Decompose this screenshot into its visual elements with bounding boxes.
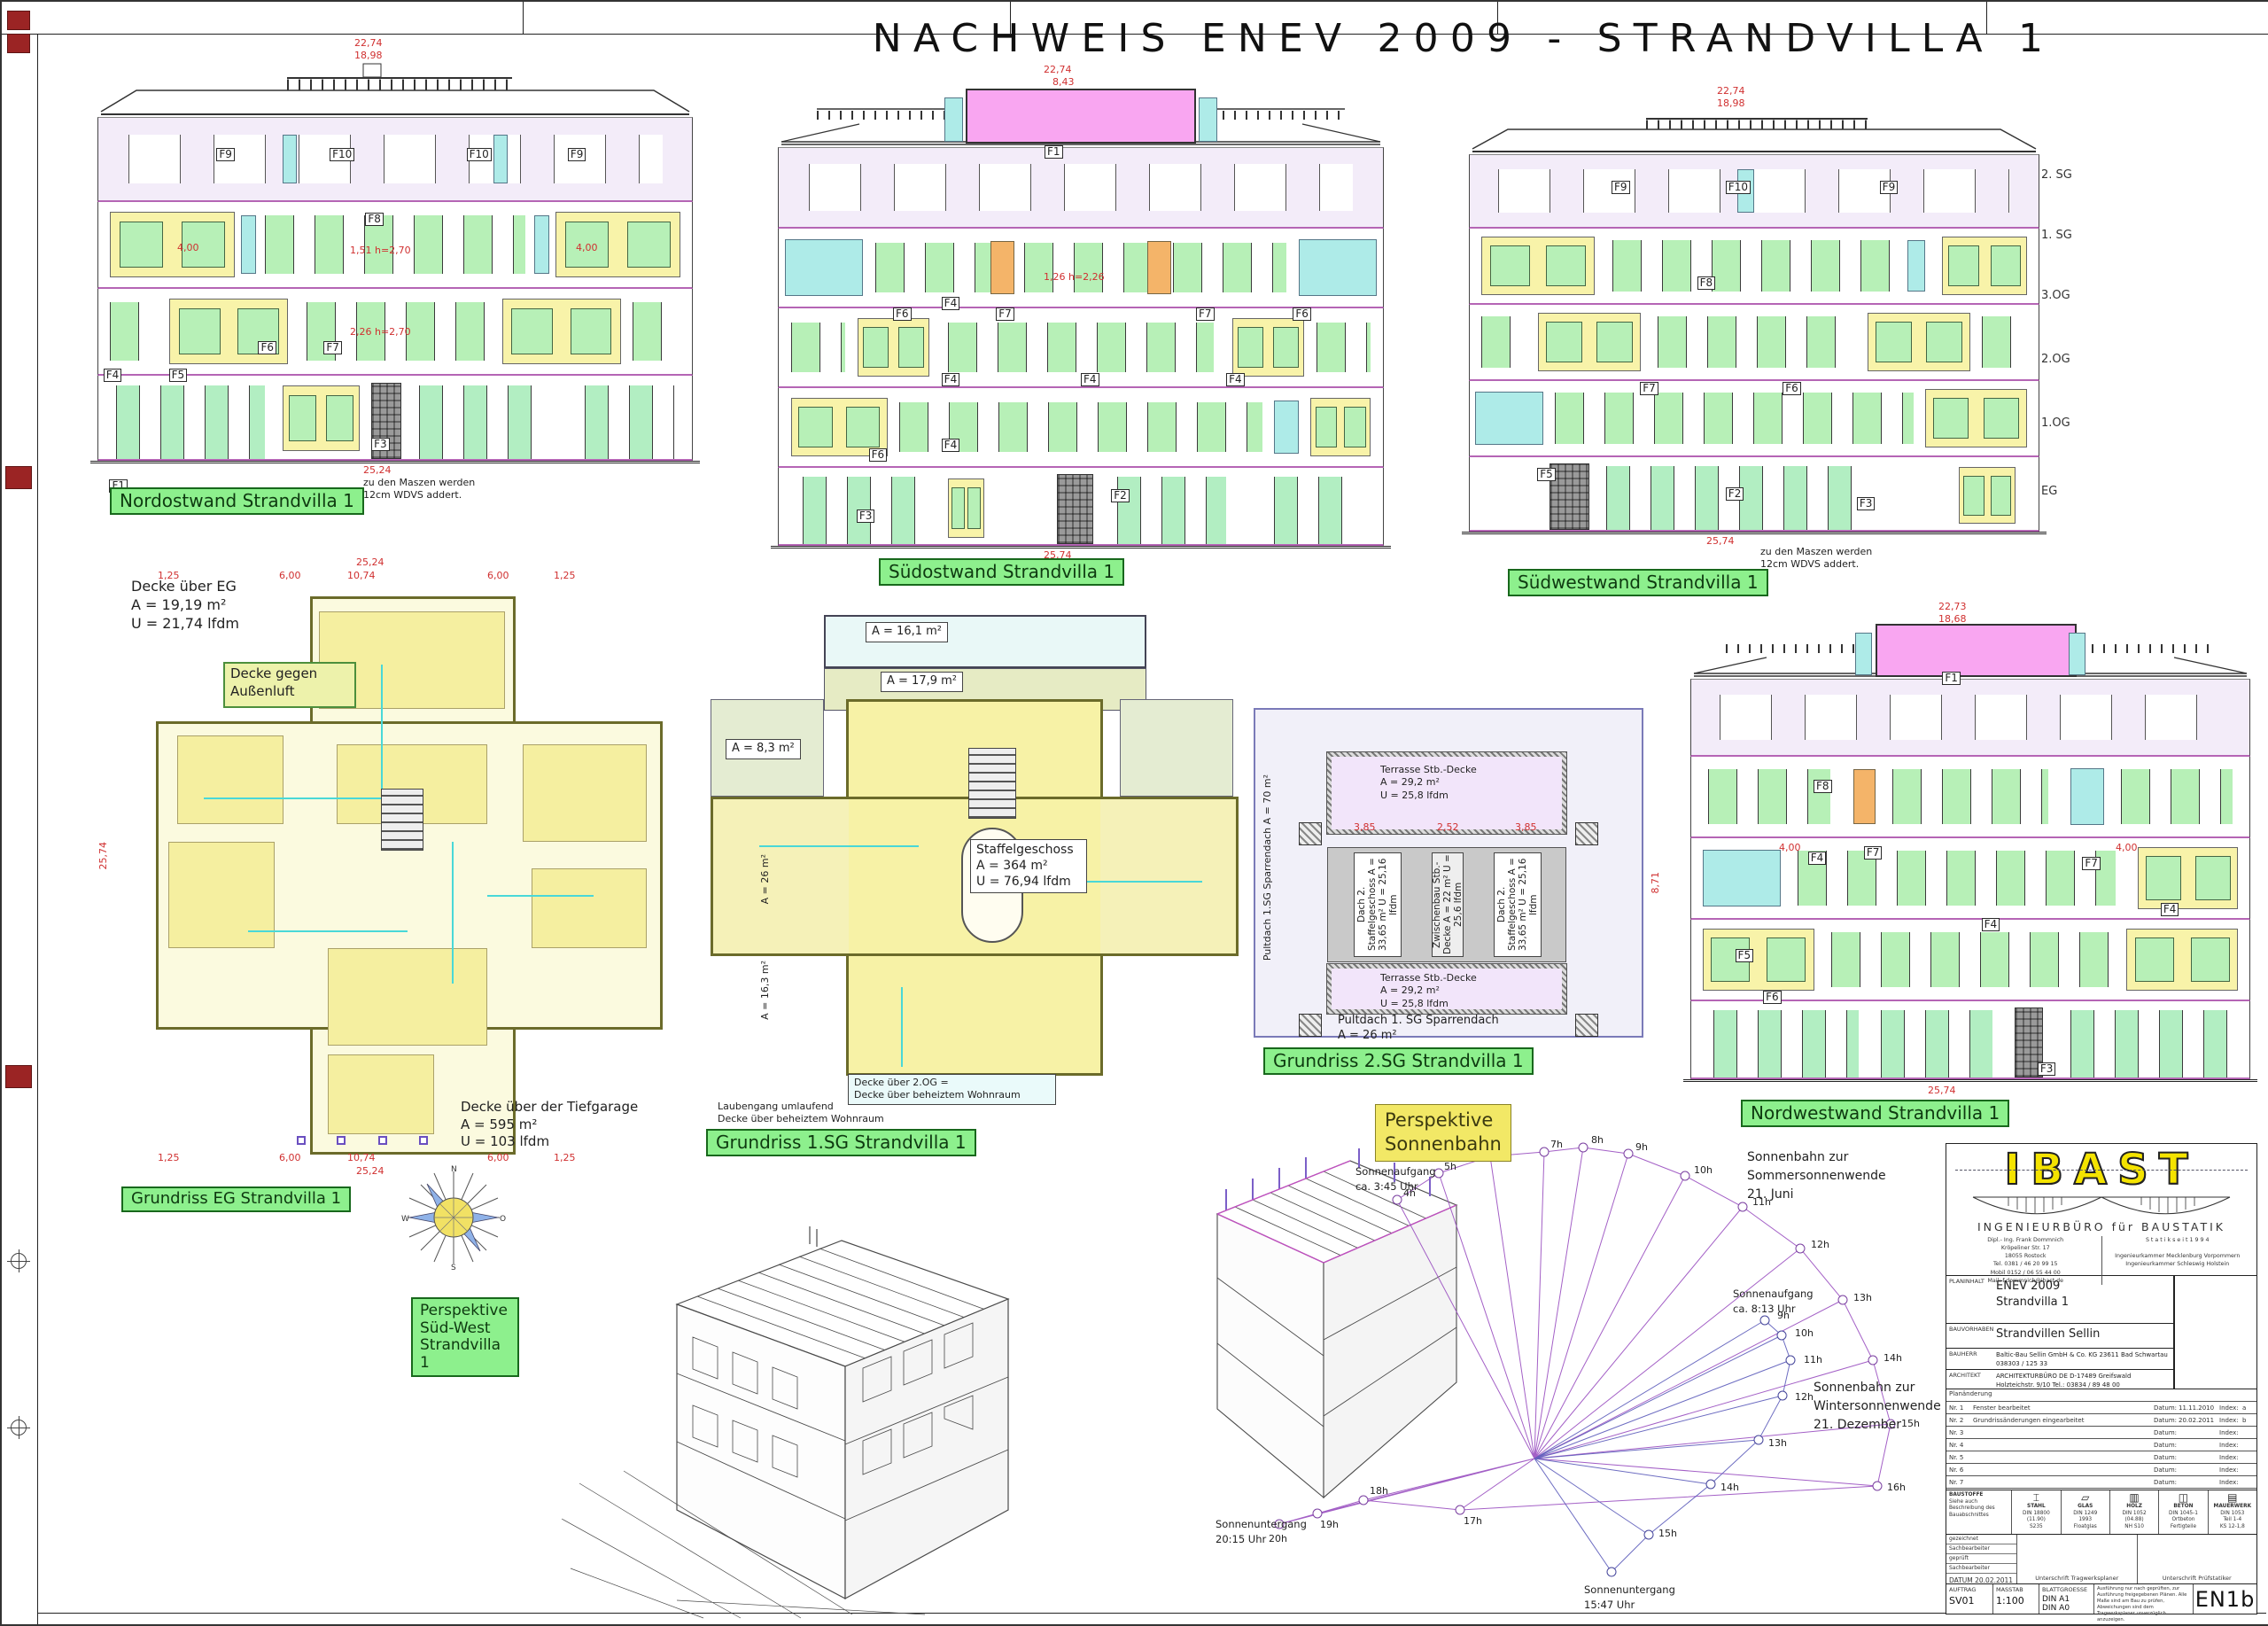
sun-hour-label: 13h	[1853, 1292, 1872, 1303]
hatch-block	[1575, 1014, 1598, 1037]
drawing-sheet: NACHWEIS ENEV 2009 - STRANDVILLA 1	[0, 0, 2268, 1626]
sun-path-diagram: 4h5h6h7h8h9h10h11h12h13h14h15h16h17h18h1…	[1127, 1129, 1986, 1624]
floor-label: 2. SG	[2041, 168, 2072, 182]
material-icon: ▥	[2129, 1492, 2139, 1504]
glass-panel	[1475, 392, 1543, 446]
perspective-suedwest-drawing	[544, 1218, 1040, 1622]
window-type-chip: F10	[1726, 181, 1751, 194]
heated-zone	[328, 1054, 434, 1134]
dimension-text: 3,85	[1354, 821, 1376, 833]
glass-panel	[2070, 768, 2104, 826]
elevation-nordostwand: F9F10F10F9F8F6F7F4F5F3F1 22,7418,984,001…	[97, 60, 693, 521]
bridge-diagram-icon	[1969, 1193, 2234, 1219]
window-type-chip: F7	[1640, 382, 1658, 395]
window-strip	[809, 164, 1353, 211]
sun-hour-label: 10h	[1795, 1327, 1814, 1339]
material-cell: ▱ GLAS DIN 12491993Floatglas	[2061, 1490, 2109, 1534]
window-strip	[633, 302, 680, 360]
area-chip: A = 17,9 m²	[881, 672, 963, 692]
view-label-perspektive-sonnenbahn: PerspektiveSonnenbahn	[1375, 1104, 1511, 1162]
plan-change-row: Nr. 6 Datum: Index:	[1946, 1464, 2256, 1476]
compass-rose: N O S W	[400, 1164, 507, 1271]
window-strip	[875, 243, 1286, 292]
side-deck	[1120, 699, 1233, 797]
baustoffe-label-cell: BAUSTOFFE Siehe auch Beschreibung des Ba…	[1946, 1490, 2011, 1534]
material-icon: ◫	[2179, 1492, 2188, 1504]
glass-panel	[1274, 401, 1298, 454]
svg-text:S: S	[451, 1264, 456, 1271]
plan-label-1sg: Grundriss 1.SG Strandvilla 1	[706, 1129, 976, 1156]
window-type-chip: F6	[1783, 382, 1801, 395]
plan-change-row: Nr. 3 Datum: Index:	[1946, 1427, 2256, 1439]
sun-hour-label: 17h	[1464, 1515, 1482, 1527]
heated-zone	[177, 735, 283, 824]
sun-hour-label: 19h	[1320, 1519, 1339, 1530]
window-strip	[1982, 316, 2027, 367]
wdvs-note: zu den Maszen werden12cm WDVS addert.	[363, 477, 475, 502]
window-strip	[1658, 316, 1851, 367]
window-type-chip: F5	[1537, 468, 1556, 481]
svg-text:N: N	[451, 1165, 457, 1174]
window-strip	[1831, 932, 2110, 986]
view-label-suedwestwand: Südwestwand Strandvilla 1	[1508, 569, 1768, 596]
column-mark	[297, 1136, 306, 1145]
tiefgarage-note: Decke über der TiefgarageA = 595 m²U = 1…	[461, 1099, 638, 1151]
door-strip	[116, 385, 265, 459]
dimension-text: 1,25	[554, 1152, 576, 1163]
sun-hour-label: 5h	[1444, 1161, 1456, 1172]
plan-change-row: Nr. 4 Datum: Index:	[1946, 1439, 2256, 1451]
dimension-text: 1,25	[158, 570, 180, 581]
column-mark	[419, 1136, 428, 1145]
area-chip: A = 8,3 m²	[726, 739, 801, 759]
window-strip	[110, 302, 158, 360]
window-type-chip: F2	[1726, 487, 1744, 501]
plan-change-row: Nr. 2Grundrissänderungen eingearbeitet D…	[1946, 1414, 2256, 1427]
window-strip	[1555, 393, 1913, 443]
dimension-text: 1,25	[554, 570, 576, 581]
auftrag-cell: AUFTRAGSV01	[1946, 1584, 1992, 1614]
partition-line	[204, 797, 381, 799]
signature-field-tragwerksplaner: Unterschrift Tragwerksplaner	[2017, 1535, 2138, 1583]
bauvorhaben-value: Strandvillen Sellin	[1994, 1324, 2101, 1348]
facade-band-attic	[778, 147, 1384, 229]
terrasse-note: Terrasse Stb.-DeckeA = 29,2 m²U = 25,8 l…	[1380, 972, 1477, 1010]
svg-text:W: W	[401, 1215, 409, 1224]
glass-panel	[241, 215, 256, 273]
dimension-text: 1,51 h=2,70	[350, 245, 411, 256]
window-type-chip: F6	[869, 448, 888, 462]
window-type-chip: F7	[1864, 846, 1883, 860]
window-type-chip: F4	[1808, 852, 1827, 865]
view-label-suedostwand: Südostwand Strandvilla 1	[879, 558, 1124, 586]
plan-change-row: Nr. 7 Datum: Index:	[1946, 1476, 2256, 1489]
elevation-suedostwand: F1F6F4F7F7F6F4F4F4F4F6F2F3 22,748,431,26…	[778, 85, 1384, 590]
footer-row: AUFTRAGSV01 MASSTAB1:100 BLATTGROESSE DI…	[1946, 1584, 2257, 1614]
facade-band-3og	[1690, 757, 2250, 838]
partition-line	[759, 845, 919, 847]
dimension-text: 25,74	[1706, 535, 1735, 547]
staffelgeschoss-note: StaffelgeschossA = 364 m²U = 76,94 lfdm	[970, 839, 1087, 893]
sun-hour-label: 7h	[1550, 1139, 1563, 1150]
window-type-chip: F6	[893, 307, 912, 321]
glass-panel	[1855, 633, 1872, 675]
material-cell: ▤ MAUERWERK DIN 1053Teil 1-4KS 12-1,8	[2208, 1490, 2256, 1534]
ground-line	[90, 461, 700, 463]
window-panel	[2126, 929, 2238, 991]
planinhalt-row: PLANINHALT ENEV 2009Strandvilla 1	[1946, 1276, 2174, 1324]
dimension-text: 18,68	[1938, 613, 1967, 625]
window-panel	[1232, 318, 1305, 377]
material-icon: ▤	[2227, 1492, 2237, 1504]
area-text: A = 26 m²	[759, 854, 771, 904]
architekt-value: ARCHITEKTURBÜRO DE D-17489 GreifswaldHol…	[1994, 1370, 2132, 1389]
window-type-chip: F7	[996, 307, 1014, 321]
window-type-chip: F10	[330, 148, 354, 161]
window-type-chip: F9	[1612, 181, 1630, 194]
sun-hour-label: 11h	[1804, 1354, 1822, 1365]
door-strip	[1274, 477, 1358, 544]
dimension-text: 4,00	[1779, 842, 1801, 853]
window-panel	[555, 212, 680, 278]
material-icon: ▱	[2081, 1492, 2089, 1504]
window-strip	[1720, 695, 2222, 740]
dimension-text: 22,74	[1044, 64, 1072, 75]
door-strip	[419, 385, 538, 459]
signature-field-pruefstatiker: Unterschrift Prüfstatiker	[2138, 1535, 2257, 1583]
sunrise-summer-note: Sonnenaufgangca. 3:45 Uhr	[1355, 1164, 1436, 1194]
glass-panel	[2069, 633, 2085, 675]
window-strip	[948, 323, 1214, 372]
wdvs-note: zu den Maszen werden12cm WDVS addert.	[1760, 546, 1872, 572]
door-panel	[1959, 467, 2016, 524]
registration-mark-icon	[11, 1420, 27, 1435]
facade-band-attic	[1469, 154, 2039, 229]
view-label-perspektive-sw: PerspektiveSüd-WestStrandvilla 1	[411, 1297, 519, 1377]
window-panel-orange	[1147, 241, 1171, 294]
pultdach-70-label: Pultdach 1.SG Sparrendach A = 70 m²	[1262, 774, 1273, 961]
glass-panel	[1703, 850, 1781, 907]
window-panel	[1925, 389, 2028, 447]
area-chip: A = 16,1 m²	[866, 622, 948, 642]
partition-line	[452, 842, 454, 984]
stairs	[968, 748, 1016, 819]
window-strip	[1798, 851, 2116, 905]
window-type-chip: F6	[258, 341, 276, 354]
window-type-chip: F1	[1942, 672, 1961, 685]
facade-band-attic	[1690, 679, 2250, 757]
svg-text:O: O	[500, 1215, 506, 1224]
sheet-code: EN1b	[2193, 1584, 2256, 1614]
window-type-chip: F4	[1081, 373, 1099, 386]
dimension-text: 4,00	[177, 242, 199, 253]
penthouse-block	[1876, 624, 2078, 677]
glass-panel	[785, 239, 864, 295]
ground-line	[1462, 532, 2047, 534]
window-type-chip: F7	[2082, 857, 2101, 870]
window-panel	[1942, 237, 2027, 295]
dimension-text: 2,26 h=2,70	[350, 326, 411, 338]
window-type-chip: F3	[371, 438, 390, 451]
penthouse-block	[966, 89, 1196, 144]
door-panel	[948, 478, 984, 538]
facade-band-eg	[1690, 1001, 2250, 1079]
glass-panel	[534, 215, 549, 273]
dach-staffel-label: Dach 2. Staffelgeschoss A = 33,65 m² U =…	[1354, 852, 1402, 957]
window-type-chip: F1	[1045, 145, 1063, 159]
dimension-text: 1,26 h=2,26	[1044, 271, 1105, 283]
window-strip	[1498, 169, 2010, 213]
floor-level-labels: 2. SG1. SG3.OG2.OG1.OGEG	[2041, 2, 2103, 533]
window-strip	[1892, 769, 2048, 823]
area-text: A = 16,3 m²	[759, 961, 771, 1020]
window-strip	[791, 323, 845, 372]
window-type-chip: F4	[1226, 373, 1245, 386]
window-type-chip: F7	[1196, 307, 1215, 321]
decke-eg-note: Decke über EGA = 19,19 m²U = 21,74 lfdm	[131, 578, 239, 633]
door-strip	[585, 385, 674, 459]
facade-band-1og	[1690, 920, 2250, 1001]
material-icon: ⌶	[2033, 1492, 2039, 1504]
sun-hour-label: 14h	[1720, 1482, 1739, 1493]
dimension-text: 2,52	[1437, 821, 1459, 833]
window-type-chip: F6	[1763, 991, 1782, 1004]
glass-panel	[1299, 239, 1378, 295]
plan-change-row: Nr. 1Fenster bearbeitet Datum:11.11.2010…	[1946, 1402, 2256, 1414]
dimension-text: 22,73	[1938, 601, 1967, 612]
view-label-nordostwand: Nordostwand Strandvilla 1	[110, 487, 364, 515]
floor-label: EG	[2041, 485, 2057, 498]
plan-change-row: Nr. 5 Datum: Index:	[1946, 1451, 2256, 1464]
masstab-cell: MASSTAB1:100	[1992, 1584, 2039, 1614]
window-panel	[2138, 847, 2238, 909]
dimension-text: 8,71	[1650, 872, 1661, 894]
door-strip	[2070, 1010, 2226, 1078]
facade-band-1og	[1469, 381, 2039, 457]
stairs	[381, 789, 423, 851]
frame-tick	[523, 2, 524, 34]
dimension-text: 10,74	[347, 570, 376, 581]
window-strip	[2121, 769, 2233, 823]
sun-hour-label: 13h	[1768, 1437, 1787, 1449]
terrace-deck: Terrasse Stb.-DeckeA = 29,2 m²U = 25,8 l…	[1327, 964, 1566, 1014]
window-type-chip: F10	[467, 148, 492, 161]
facade-band-2og	[1469, 305, 2039, 381]
hatch-block	[1575, 822, 1598, 845]
heated-zone	[328, 948, 487, 1046]
bauherr-row: BAUHERR Baltic-Bau Sellin GmbH & Co. KG …	[1946, 1349, 2174, 1370]
glass-panel	[283, 135, 298, 184]
window-panel-orange	[990, 241, 1014, 294]
dimension-text: 25,74	[1928, 1085, 1956, 1096]
hatch-block	[1299, 822, 1322, 845]
window-type-chip: F4	[104, 369, 122, 382]
window-type-chip: F8	[365, 213, 384, 226]
material-cell: ⌶ STAHL DIN 18800(11.90)S235	[2011, 1490, 2060, 1534]
hatch-block	[1299, 1014, 1322, 1037]
window-panel	[1310, 398, 1371, 457]
window-panel-orange	[1853, 769, 1876, 823]
sheet-title: NACHWEIS ENEV 2009 - STRANDVILLA 1	[684, 16, 2243, 61]
dach-staffel-label: Dach 2. Staffelgeschoss A = 33,65 m² U =…	[1494, 852, 1542, 957]
sunset-summer-note: Sonnenuntergang20:15 Uhr	[1216, 1517, 1307, 1546]
window-type-chip: F4	[942, 297, 960, 310]
ground-line	[771, 546, 1391, 548]
firm-name: INGENIEURBÜRO für BAUSTATIK	[1950, 1220, 2253, 1233]
roof-drawing	[1469, 105, 2039, 154]
blattgroesse-cell: BLATTGROESSE DIN A1 DIN A0	[2039, 1584, 2093, 1614]
window-strip	[1612, 240, 1897, 291]
heated-zone	[523, 744, 647, 842]
fold-mark	[7, 11, 30, 30]
facade-band-eg	[778, 468, 1384, 546]
fold-mark	[7, 34, 30, 53]
facade-band-attic	[97, 117, 693, 202]
facade-band-3og	[778, 229, 1384, 308]
winter-solstice-title: Sonnenbahn zurWintersonnenwende21. Dezem…	[1814, 1379, 1941, 1435]
bauvorhaben-row: BAUVORHABEN Strandvillen Sellin	[1946, 1324, 2174, 1349]
sun-hour-label: 12h	[1811, 1239, 1829, 1250]
dimension-text: 1,25	[158, 1152, 180, 1163]
elevation-suedwestwand: F9F10F9F8F7F6F5F2F3 22,7418,9825,74 zu d…	[1469, 105, 2039, 583]
window-type-chip: F8	[1814, 780, 1832, 793]
sun-hour-label: 15h	[1658, 1528, 1677, 1539]
window-panel	[1481, 237, 1595, 295]
glass-panel	[493, 135, 509, 184]
door-strip	[1713, 1010, 1859, 1078]
sunset-winter-note: Sonnenuntergang15:47 Uhr	[1584, 1583, 1675, 1612]
sun-hour-label: 8h	[1591, 1134, 1604, 1146]
ground-line	[1683, 1079, 2257, 1082]
dimension-text: 6,00	[487, 570, 509, 581]
sun-hour-label: 18h	[1370, 1485, 1388, 1497]
window-type-chip: F6	[1293, 307, 1311, 321]
roof-drawing	[97, 60, 693, 117]
grundriss-2sg: Terrasse Stb.-DeckeA = 29,2 m²U = 25,8 l…	[1249, 659, 1657, 1085]
plan-changes-table: Planänderung Nr. 1Fenster bearbeitet Dat…	[1946, 1389, 2257, 1490]
facade-band-eg	[97, 376, 693, 461]
grundriss-eg: Decke gegenAußenluft Decke über EGA = 19…	[115, 576, 700, 1276]
window-type-chip: F5	[169, 369, 188, 382]
dimension-text: 22,74	[354, 37, 383, 49]
aussenluft-note: Decke gegenAußenluft	[223, 662, 356, 708]
door-strip	[1117, 477, 1226, 544]
heated-zone	[168, 842, 275, 948]
window-type-chip: F2	[1111, 489, 1130, 502]
window-type-chip: F3	[2038, 1062, 2056, 1076]
window-type-chip: F8	[1697, 276, 1716, 290]
fineprint-cell: Ausführung nur nach geprüften, zur Ausfü…	[2093, 1584, 2193, 1614]
floor-label: 2.OG	[2041, 353, 2070, 366]
dimension-text: 6,00	[279, 1152, 301, 1163]
ibast-logo: IBAST	[1950, 1147, 2253, 1193]
sun-hour-label: 12h	[1795, 1391, 1814, 1403]
window-panel	[858, 318, 930, 377]
column-mark	[378, 1136, 387, 1145]
signature-labels: gezeichnet Sachbearbeiter geprüft Sachbe…	[1946, 1535, 2017, 1583]
dimension-text: 8,43	[1052, 76, 1075, 88]
bauherr-value: Baltic-Bau Sellin GmbH & Co. KG 23611 Ba…	[1994, 1349, 2170, 1369]
window-panel	[1703, 929, 1814, 991]
dimension-text: 25,24	[356, 1165, 384, 1177]
empty-box	[2174, 1276, 2257, 1389]
stair-shaft	[1057, 474, 1093, 544]
window-type-chip: F5	[1736, 949, 1754, 962]
window-type-chip: F9	[1880, 181, 1899, 194]
signature-block: gezeichnet Sachbearbeiter geprüft Sachbe…	[1946, 1535, 2257, 1584]
window-type-chip: F9	[216, 148, 235, 161]
fold-mark	[5, 466, 32, 489]
dimension-text: 3,85	[1515, 821, 1537, 833]
window-strip	[1317, 323, 1371, 372]
window-panel	[502, 299, 621, 365]
glass-panel	[1199, 97, 1217, 142]
dimension-text: 25,24	[363, 464, 392, 476]
pultdach-26-note: Pultdach 1. SG SparrendachA = 26 m²	[1338, 1014, 1499, 1044]
floor-label: 3.OG	[2041, 289, 2070, 302]
facade-band-3og	[1469, 229, 2039, 305]
partition-line	[487, 895, 594, 897]
view-label-nordwestwand: Nordwestwand Strandvilla 1	[1741, 1100, 2009, 1127]
partition-line	[248, 930, 408, 932]
frame-left-line	[37, 34, 38, 1624]
window-type-chip: F3	[857, 510, 875, 523]
terrasse-note: Terrasse Stb.-DeckeA = 29,2 m²U = 25,8 l…	[1380, 764, 1477, 802]
dimension-text: 4,00	[2116, 842, 2138, 853]
sun-hour-label: 10h	[1694, 1164, 1713, 1176]
window-panel	[110, 212, 235, 278]
floor-label: 1. SG	[2041, 229, 2072, 242]
material-cell: ▥ HOLZ DIN 1052(04.88)NH S10	[2109, 1490, 2158, 1534]
window-type-chip: F4	[2161, 903, 2179, 916]
sun-hour-label: 14h	[1884, 1352, 1902, 1364]
dimension-text: 25,74	[97, 842, 109, 870]
planinhalt-value: ENEV 2009Strandvilla 1	[1994, 1276, 2070, 1323]
window-type-chip: F7	[323, 341, 342, 354]
laubengang-note: Laubengang umlaufendDecke über beheiztem…	[718, 1101, 884, 1126]
glass-panel	[944, 97, 963, 142]
dimension-text: 6,00	[279, 570, 301, 581]
grundriss-1sg: A = 16,1 m² A = 17,9 m² A = 8,3 m² A = 2…	[706, 615, 1243, 1182]
fold-mark	[5, 1065, 32, 1088]
partition-line	[381, 665, 383, 797]
architekt-row: ARCHITEKT ARCHITEKTURBÜRO DE D-17489 Gre…	[1946, 1370, 2174, 1389]
dimension-text: 4,00	[576, 242, 598, 253]
window-panel	[1538, 313, 1641, 371]
floor-label: 1.OG	[2041, 416, 2070, 430]
window-strip	[1708, 769, 1831, 823]
logo-box: IBAST INGENIEURBÜRO für BAUSTATIK Dipl.-…	[1946, 1143, 2257, 1276]
sunrise-winter-note: Sonnenaufgangca. 8:13 Uhr	[1733, 1287, 1814, 1316]
column-mark	[337, 1136, 346, 1145]
title-block: IBAST INGENIEURBÜRO für BAUSTATIK Dipl.-…	[1946, 1143, 2257, 1614]
window-type-chip: F9	[568, 148, 586, 161]
elevation-nordwestwand: F1F8F7F4F7F4F4F5F6F3 22,7318,684,004,002…	[1690, 620, 2250, 1134]
partition-line	[901, 987, 903, 1067]
dimension-text: 6,00	[487, 1152, 509, 1163]
registration-mark-icon	[11, 1253, 27, 1269]
window-panel	[283, 385, 360, 450]
door-strip	[1881, 1010, 1992, 1078]
plan-label-eg: Grundriss EG Strandvilla 1	[121, 1186, 351, 1212]
window-panel	[169, 299, 288, 365]
window-strip	[1481, 316, 1526, 367]
window-type-chip: F4	[942, 373, 960, 386]
glass-panel	[1907, 240, 1924, 291]
dimension-text: 10,74	[347, 1152, 376, 1163]
window-type-chip: F3	[1857, 497, 1876, 510]
zwischenbau-label: Zwischenbau Stb.-Decke A = 22 m² U = 25,…	[1432, 852, 1464, 957]
